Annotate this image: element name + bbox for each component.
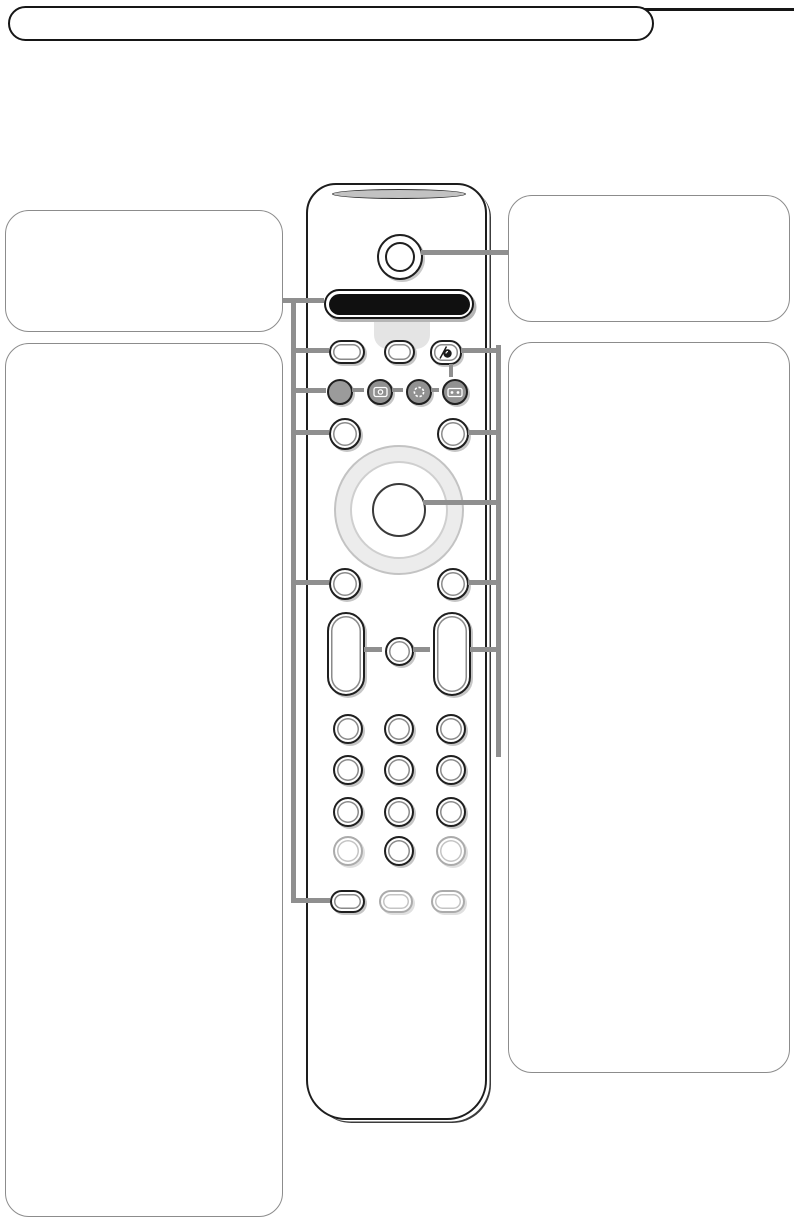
keypad-button-r3c2[interactable]: [384, 797, 414, 827]
connector-right-vertical: [496, 345, 501, 757]
connector-mute-2: [413, 647, 430, 652]
mode-button-2[interactable]: [367, 379, 393, 405]
title-banner: [8, 6, 654, 41]
connector-mute-1: [364, 647, 382, 652]
mode-row-dash-2: [392, 388, 403, 392]
mode-button-4[interactable]: [442, 379, 468, 405]
manual-page: [0, 0, 794, 1219]
volume-rocker[interactable]: [327, 612, 365, 696]
connector-lower-right: [468, 580, 501, 585]
keypad-button-r2c1[interactable]: [333, 755, 363, 785]
callout-top-left: [5, 210, 283, 332]
mode-row-dash-1: [352, 388, 364, 392]
keypad-button-r4c2[interactable]: [384, 836, 414, 866]
connector-ok: [423, 500, 501, 505]
mode-button-3[interactable]: [406, 379, 432, 405]
connector-power: [421, 250, 508, 255]
keypad-button-r1c2[interactable]: [384, 714, 414, 744]
active-control-button[interactable]: [430, 340, 462, 365]
bottom-pill-2[interactable]: [379, 890, 413, 913]
display-window: [324, 289, 474, 319]
keypad-button-r4c3[interactable]: [436, 836, 466, 866]
dish-circle-icon: [412, 385, 426, 399]
mute-button[interactable]: [385, 637, 414, 666]
menu-button-left[interactable]: [329, 418, 361, 450]
bottom-pill-1[interactable]: [330, 890, 365, 913]
keypad-button-r1c3[interactable]: [436, 714, 466, 744]
pill-button-left[interactable]: [329, 340, 365, 364]
mode-row-dash-3: [431, 388, 439, 392]
connector-rocker-right: [470, 647, 501, 652]
connector-lower-left: [291, 580, 329, 585]
keypad-button-r2c2[interactable]: [384, 755, 414, 785]
keypad-button-r2c3[interactable]: [436, 755, 466, 785]
keypad-button-r3c3[interactable]: [436, 797, 466, 827]
lower-button-right[interactable]: [437, 568, 469, 600]
connector-bottom-pill: [291, 898, 330, 903]
connector-mode-row-left: [291, 388, 326, 393]
remote-control-body: [306, 183, 487, 1120]
monitor-icon: [373, 386, 388, 399]
connector-menu-left: [291, 430, 329, 435]
callout-top-right: [508, 195, 790, 322]
connector-pill-left: [291, 348, 329, 353]
power-button-cap: [385, 242, 415, 272]
callout-bottom-right: [508, 342, 790, 1073]
callout-bottom-left: [5, 343, 283, 1217]
keypad-button-r1c1[interactable]: [333, 714, 363, 744]
active-control-icon: [437, 345, 455, 360]
ok-button[interactable]: [372, 483, 426, 537]
menu-button-right[interactable]: [437, 418, 469, 450]
pill-button-middle[interactable]: [384, 340, 415, 364]
vcr-cassette-icon: [447, 386, 463, 399]
keypad-button-r4c1[interactable]: [333, 836, 363, 866]
connector-active-control: [461, 348, 501, 353]
program-rocker[interactable]: [433, 612, 471, 696]
display-screen: [329, 294, 470, 315]
connector-display-left: [283, 298, 324, 303]
keypad-button-r3c1[interactable]: [333, 797, 363, 827]
ir-window: [332, 189, 466, 199]
mode-button-1[interactable]: [327, 379, 353, 405]
active-to-mode-stub: [449, 364, 453, 377]
connector-menu-right: [468, 430, 501, 435]
lower-button-left[interactable]: [329, 568, 361, 600]
power-button[interactable]: [377, 234, 423, 280]
bottom-pill-3[interactable]: [431, 890, 465, 913]
